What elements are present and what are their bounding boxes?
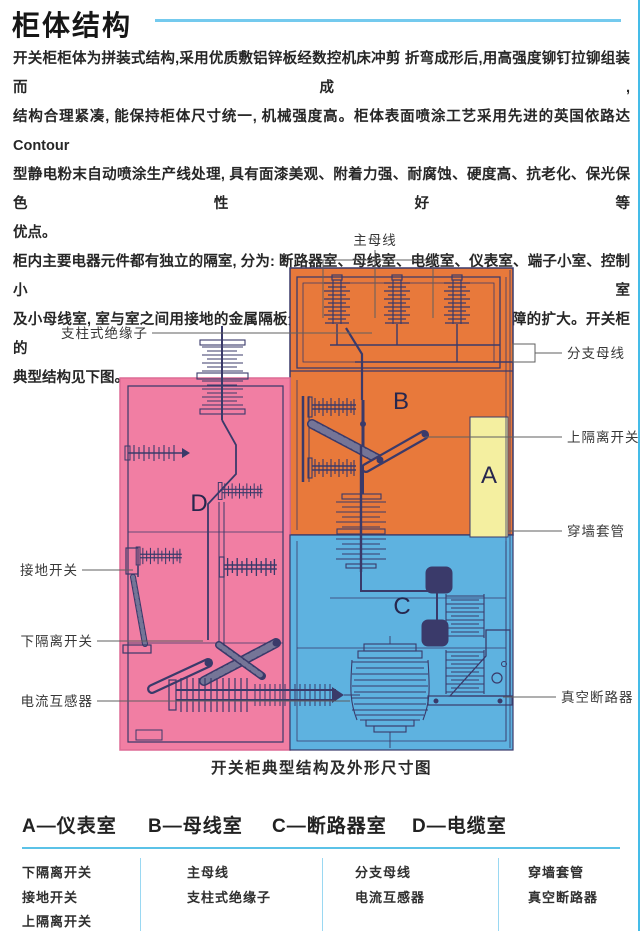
- paragraph-line: 型静电粉末自动喷涂生产线处理, 具有面漆美观、附着力强、耐腐蚀、硬度高、抗老化、…: [13, 161, 630, 219]
- legend-item: 下隔离开关: [22, 861, 92, 886]
- paragraph-line: 结构合理紧凑, 能保持柜体尺寸统一, 机械强度高。柜体表面喷涂工艺采用先进的英国…: [13, 103, 630, 161]
- catalog-page: 柜体结构 开关柜柜体为拼装式结构,采用优质敷铝锌板经数控机床冲剪 折弯成形后,用…: [0, 0, 643, 931]
- region-c-fill: [290, 535, 513, 750]
- label-wall-bushing: 穿墙套管: [567, 524, 625, 539]
- label-post-insulator: 支柱式绝缘子: [61, 326, 148, 341]
- label-main-busbar: 主母线: [353, 233, 397, 248]
- legend-column-separator: [498, 858, 499, 931]
- legend-header-d: D—电缆室: [412, 811, 507, 838]
- title-underline: [155, 19, 621, 22]
- region-letter-a: A: [481, 462, 497, 489]
- legend-item: 电流互感器: [355, 886, 425, 911]
- legend-item: 上隔离开关: [22, 910, 92, 931]
- legend-divider: [22, 847, 620, 849]
- label-earthing-switch: 接地开关: [20, 562, 78, 578]
- pointer-branch-busbar: [513, 344, 535, 362]
- paragraph-line: 开关柜柜体为拼装式结构,采用优质敷铝锌板经数控机床冲剪 折弯成形后,用高强度铆钉…: [13, 45, 630, 103]
- legend-column-separator: [322, 858, 323, 931]
- label-branch-busbar: 分支母线: [567, 346, 625, 361]
- label-current-transformer: 电流互感器: [21, 693, 94, 709]
- legend-header-a: A—仪表室: [22, 811, 117, 838]
- region-letter-c: C: [393, 593, 410, 620]
- region-letter-d: D: [190, 490, 207, 517]
- legend-column-c-items: 分支母线 电流互感器: [355, 861, 425, 910]
- region-letter-b: B: [393, 388, 409, 415]
- legend-item: 穿墙套管: [528, 861, 598, 886]
- page-title: 柜体结构: [12, 4, 132, 44]
- switchgear-structure-diagram: 主母线 支柱式绝缘子 分支母线 上隔离开关 穿墙套管 接地开关 下隔离开关 电流…: [0, 228, 643, 752]
- legend-header-c: C—断路器室: [272, 811, 387, 838]
- label-vacuum-breaker: 真空断路器: [561, 690, 634, 705]
- legend-column-d-items: 穿墙套管 真空断路器: [528, 861, 598, 910]
- legend-item: 分支母线: [355, 861, 425, 886]
- legend-column-a-items: 下隔离开关 接地开关 上隔离开关: [22, 861, 92, 931]
- legend-header-b: B—母线室: [148, 811, 243, 838]
- legend-column-b-items: 主母线 支柱式绝缘子: [187, 861, 271, 910]
- legend-item: 真空断路器: [528, 886, 598, 911]
- legend-item: 支柱式绝缘子: [187, 886, 271, 911]
- legend-column-separator: [140, 858, 141, 931]
- label-lower-disconnector: 下隔离开关: [21, 633, 94, 649]
- legend-item: 接地开关: [22, 886, 92, 911]
- label-upper-disconnector: 上隔离开关: [567, 429, 640, 445]
- diagram-caption: 开关柜典型结构及外形尺寸图: [0, 756, 643, 778]
- legend-item: 主母线: [187, 861, 271, 886]
